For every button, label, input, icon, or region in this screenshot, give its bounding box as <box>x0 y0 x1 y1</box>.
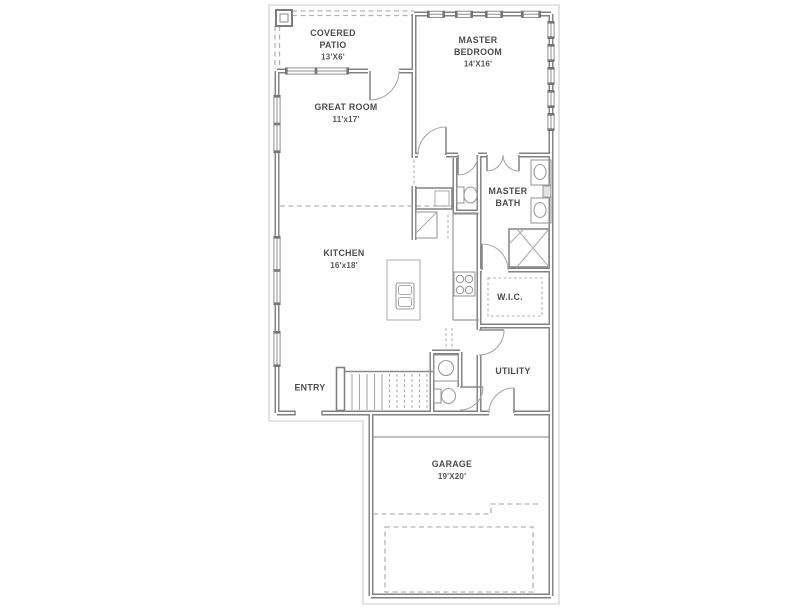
room-dims: 13'X6' <box>321 53 345 62</box>
kitchen-island <box>387 260 420 320</box>
window-icon <box>521 11 541 18</box>
wic-door-swing <box>482 244 508 270</box>
floor-plan-drawing: COVERED PATIO 13'X6' MASTER BEDROOM 14'X… <box>0 0 810 608</box>
room-name: MASTER <box>459 35 498 45</box>
powder-room-fixtures <box>434 355 458 404</box>
room-label-garage: GARAGE 19'X20' <box>432 459 472 481</box>
room-name: GARAGE <box>432 459 472 469</box>
patio-door-swing <box>370 71 399 100</box>
room-label-entry: ENTRY <box>295 383 326 393</box>
window-icon <box>285 68 349 75</box>
patio-post-icon <box>276 10 292 26</box>
room-label-utility: UTILITY <box>495 366 530 376</box>
bath-double-door-swing <box>487 155 519 171</box>
powder-vanity-sink-icon <box>434 355 458 381</box>
island-sink-icon <box>396 283 414 309</box>
room-label-wic: W.I.C. <box>497 292 523 302</box>
window-icon <box>548 113 555 131</box>
utility-door-swing <box>479 330 504 355</box>
garage-dashed-line <box>373 504 540 514</box>
kitchen-counter <box>453 213 479 320</box>
window-icon <box>274 95 281 153</box>
room-label-master-bedroom: MASTER BEDROOM 14'X16' <box>454 35 502 69</box>
room-dims: 16'x18' <box>330 261 357 270</box>
window-icon <box>548 67 555 85</box>
room-dims: 11'x17' <box>332 115 359 124</box>
powder-toilet-icon <box>434 389 456 404</box>
vanity-sinks-icon <box>531 160 551 223</box>
window-icon <box>274 331 281 367</box>
room-name: W.I.C. <box>497 292 523 302</box>
range-cooktop-icon <box>454 272 475 296</box>
room-name: BATH <box>496 198 521 208</box>
room-name: GREAT ROOM <box>315 102 378 112</box>
room-label-great-room: GREAT ROOM 11'x17' <box>315 102 378 124</box>
bedroom-door-swing <box>418 127 446 155</box>
kitchen-fixtures <box>387 188 479 320</box>
room-label-master-bath: MASTER BATH <box>489 186 528 208</box>
room-name: COVERED <box>310 28 356 38</box>
garage-slab-dashed-outline <box>385 527 533 592</box>
room-dims: 19'X20' <box>438 472 466 481</box>
doors <box>295 71 519 416</box>
window-icon <box>485 11 503 18</box>
room-name: KITCHEN <box>323 248 364 258</box>
water-closet-door-swing <box>458 155 478 175</box>
garage-entry-door-swing <box>489 388 514 413</box>
window-icon <box>548 90 555 108</box>
shower-icon <box>509 229 549 267</box>
stairs <box>337 368 434 411</box>
room-dims: 14'X16' <box>464 60 492 69</box>
window-icon <box>427 11 445 18</box>
room-name: PATIO <box>319 40 346 50</box>
wc-toilet-icon <box>457 187 477 203</box>
window-icon <box>455 11 473 18</box>
room-name: BEDROOM <box>454 47 502 57</box>
window-icon <box>548 44 555 62</box>
window-icon <box>274 236 281 305</box>
window-icon <box>548 21 555 39</box>
floor-plan: COVERED PATIO 13'X6' MASTER BEDROOM 14'X… <box>0 0 810 608</box>
room-label-covered-patio: COVERED PATIO 13'X6' <box>310 28 356 62</box>
entry-opening-dash <box>446 328 452 351</box>
pantry-cabinet <box>416 212 437 238</box>
room-name: ENTRY <box>295 383 326 393</box>
room-name: UTILITY <box>495 366 530 376</box>
stair-treads <box>352 374 427 410</box>
room-name: MASTER <box>489 186 528 196</box>
room-label-kitchen: KITCHEN 16'x18' <box>323 248 364 270</box>
